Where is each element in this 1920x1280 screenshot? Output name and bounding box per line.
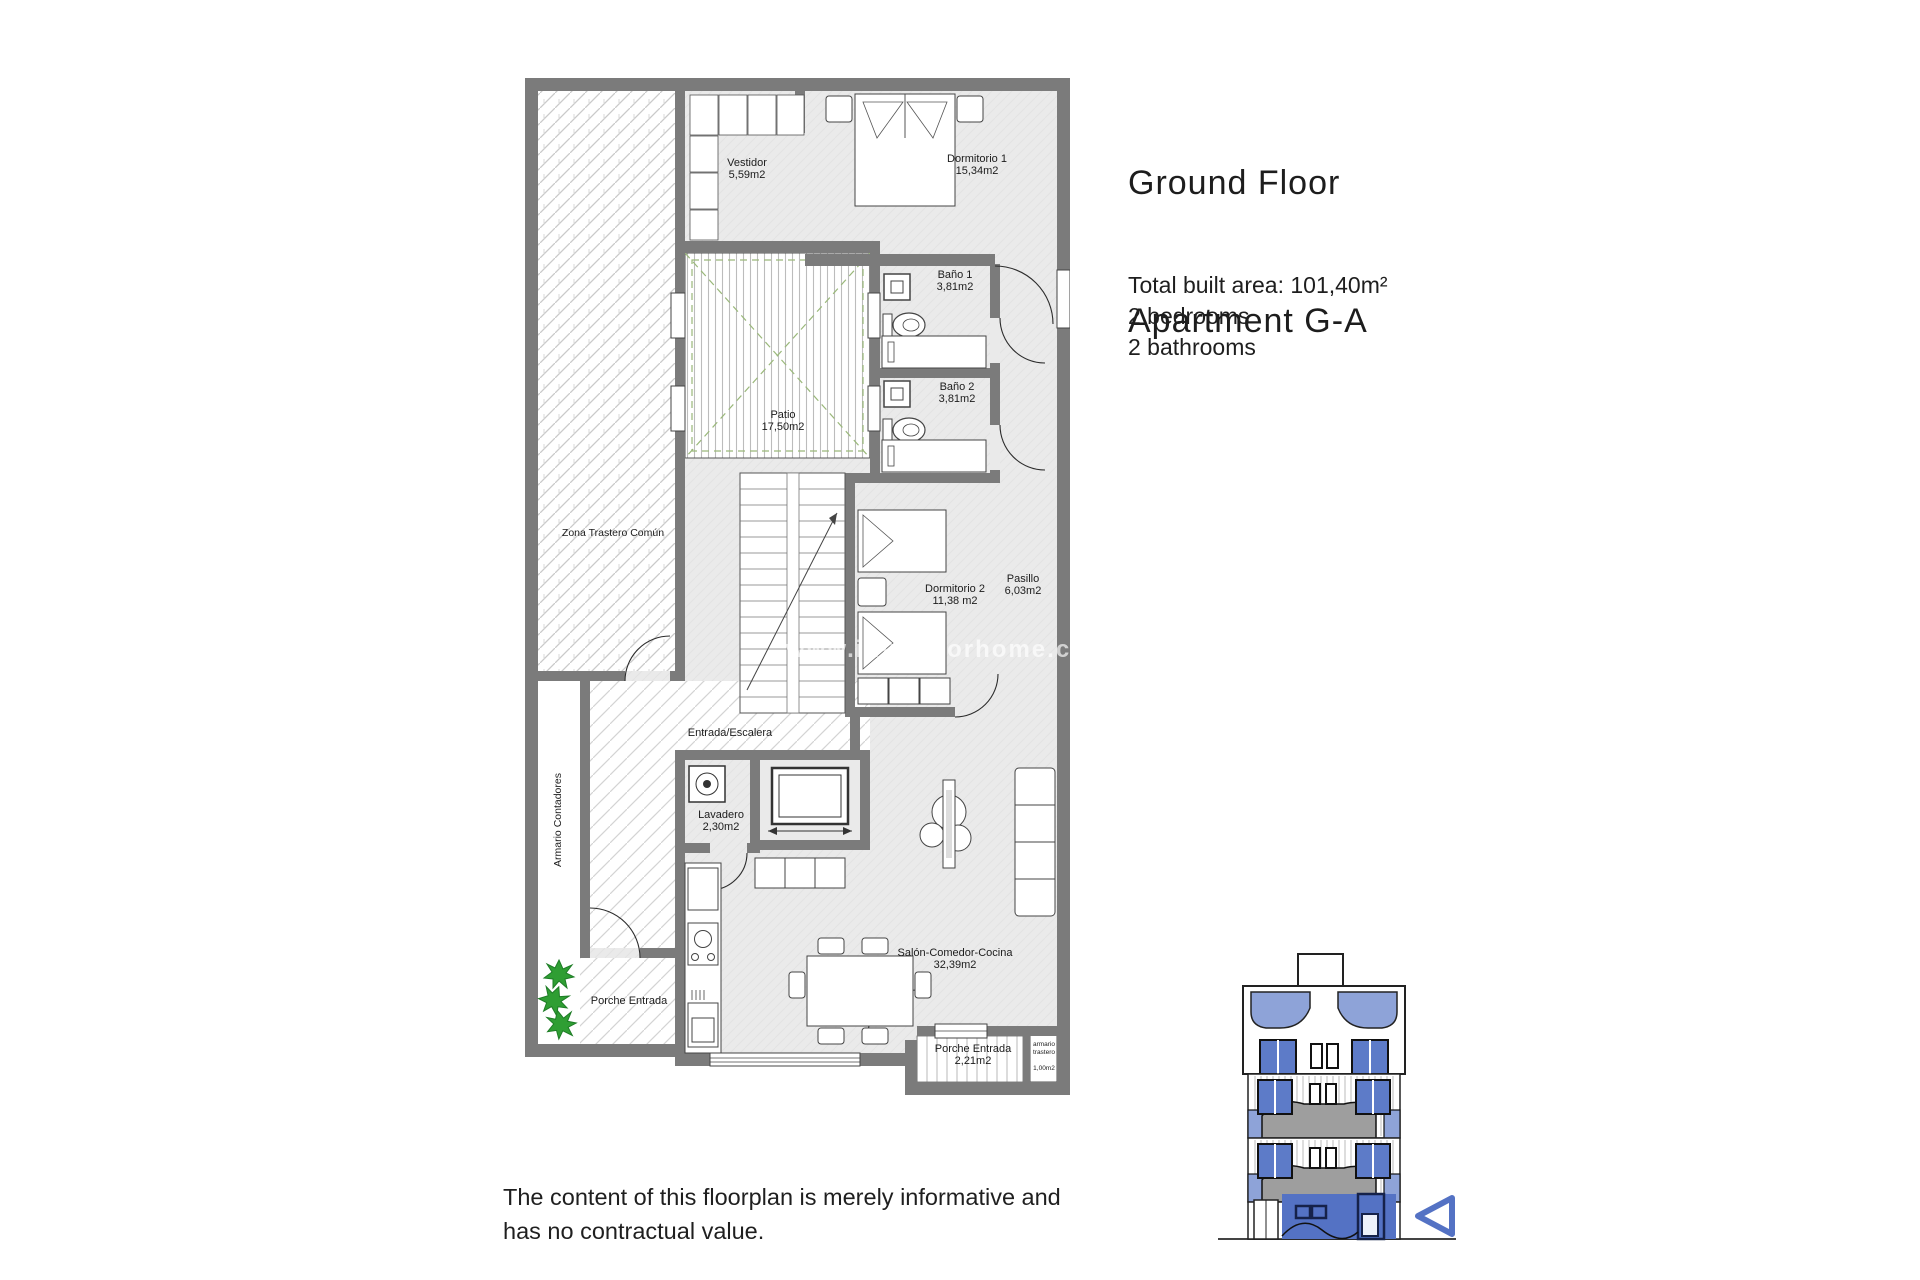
room-area-lavadero: 2,30m2 [703,821,740,833]
room-label-pasillo: Pasillo [1007,573,1039,585]
room-label-armario-contadores: Armario Contadores [552,773,564,867]
title-line1: Ground Floor [1128,160,1368,206]
summary-block: Total built area: 101,40m² 2 bedrooms 2 … [1128,270,1388,363]
elevation-floor-2 [1248,1074,1400,1138]
room-label-entrada: Entrada/Escalera [688,727,773,739]
room-area-patio: 17,50m2 [762,421,805,433]
bath1-door-gap [990,318,1000,363]
total-area-text: Total built area: 101,40m² [1128,270,1388,301]
room-label-vestidor: Vestidor [727,157,767,169]
sofa [1015,768,1055,916]
room-label-patio: Patio [770,409,795,421]
staircase [740,473,845,713]
room-area-salon: 32,39m2 [934,959,977,971]
room-area-dormitorio2: 11,38 m2 [932,595,977,607]
bedrooms-text: 2 bedrooms [1128,301,1388,332]
room-label-porche-der: Porche Entrada [935,1043,1012,1055]
room-label-salon: Salón-Comedor-Cocina [898,947,1014,959]
bathrooms-text: 2 bathrooms [1128,332,1388,363]
zona-trastero-area [538,91,675,671]
floorplan-page: Vestidor 5,59m2 Dormitorio 1 15,34m2 Bañ… [0,0,1920,1280]
ground-floor-highlight [1248,1194,1400,1239]
room-label-dormitorio1: Dormitorio 1 [947,153,1007,165]
kitchen-counter [685,863,721,1053]
elevator [760,760,860,840]
building-elevation [1218,948,1468,1248]
bath2-door-gap [990,425,1000,470]
location-arrow-icon [1418,1198,1452,1234]
page-title: Ground Floor Apartment G-A [1128,68,1368,436]
room-label-lavadero: Lavadero [698,809,744,821]
room-area-dormitorio1: 15,34m2 [956,165,999,177]
room-label-porche-izq: Porche Entrada [591,995,668,1007]
room-label-bano2: Baño 2 [940,381,975,393]
tv-unit [943,780,955,868]
bench [755,858,845,888]
room-label-armario-trastero-1: armario [1033,1041,1055,1048]
room-label-zona-trastero: Zona Trastero Común [562,527,664,539]
floorplan: Vestidor 5,59m2 Dormitorio 1 15,34m2 Bañ… [525,78,1070,1095]
washing-machine-icon [689,766,725,802]
disclaimer-line2: has no contractual value. [503,1214,1061,1248]
room-area-bano2: 3,81m2 [939,393,976,405]
elevation-roof [1243,954,1405,1074]
room-area-bano1: 3,81m2 [937,281,974,293]
room-area-pasillo: 6,03m2 [1005,585,1042,597]
disclaimer: The content of this floorplan is merely … [503,1180,1061,1248]
elevation-floor-1 [1248,1138,1400,1202]
room-area-porche-der: 2,21m2 [955,1055,992,1067]
room-label-armario-trastero-2: trastero [1033,1049,1055,1056]
room-area-vestidor: 5,59m2 [729,169,766,181]
room-label-dormitorio2: Dormitorio 2 [925,583,985,595]
watermark: www.investforhome.c [786,636,1071,664]
room-area-armario-trastero: 1,00m2 [1033,1065,1055,1072]
room-label-bano1: Baño 1 [938,269,973,281]
disclaimer-line1: The content of this floorplan is merely … [503,1180,1061,1214]
